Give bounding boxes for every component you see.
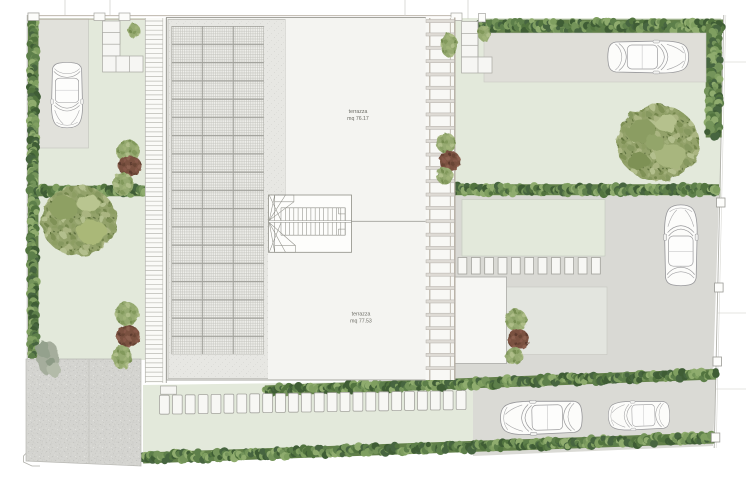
svg-text:terrazza: terrazza xyxy=(349,109,368,115)
svg-text:terrazza: terrazza xyxy=(352,312,371,318)
svg-text:mq 76.17: mq 76.17 xyxy=(347,116,369,122)
svg-text:mq 77.53: mq 77.53 xyxy=(350,319,372,325)
